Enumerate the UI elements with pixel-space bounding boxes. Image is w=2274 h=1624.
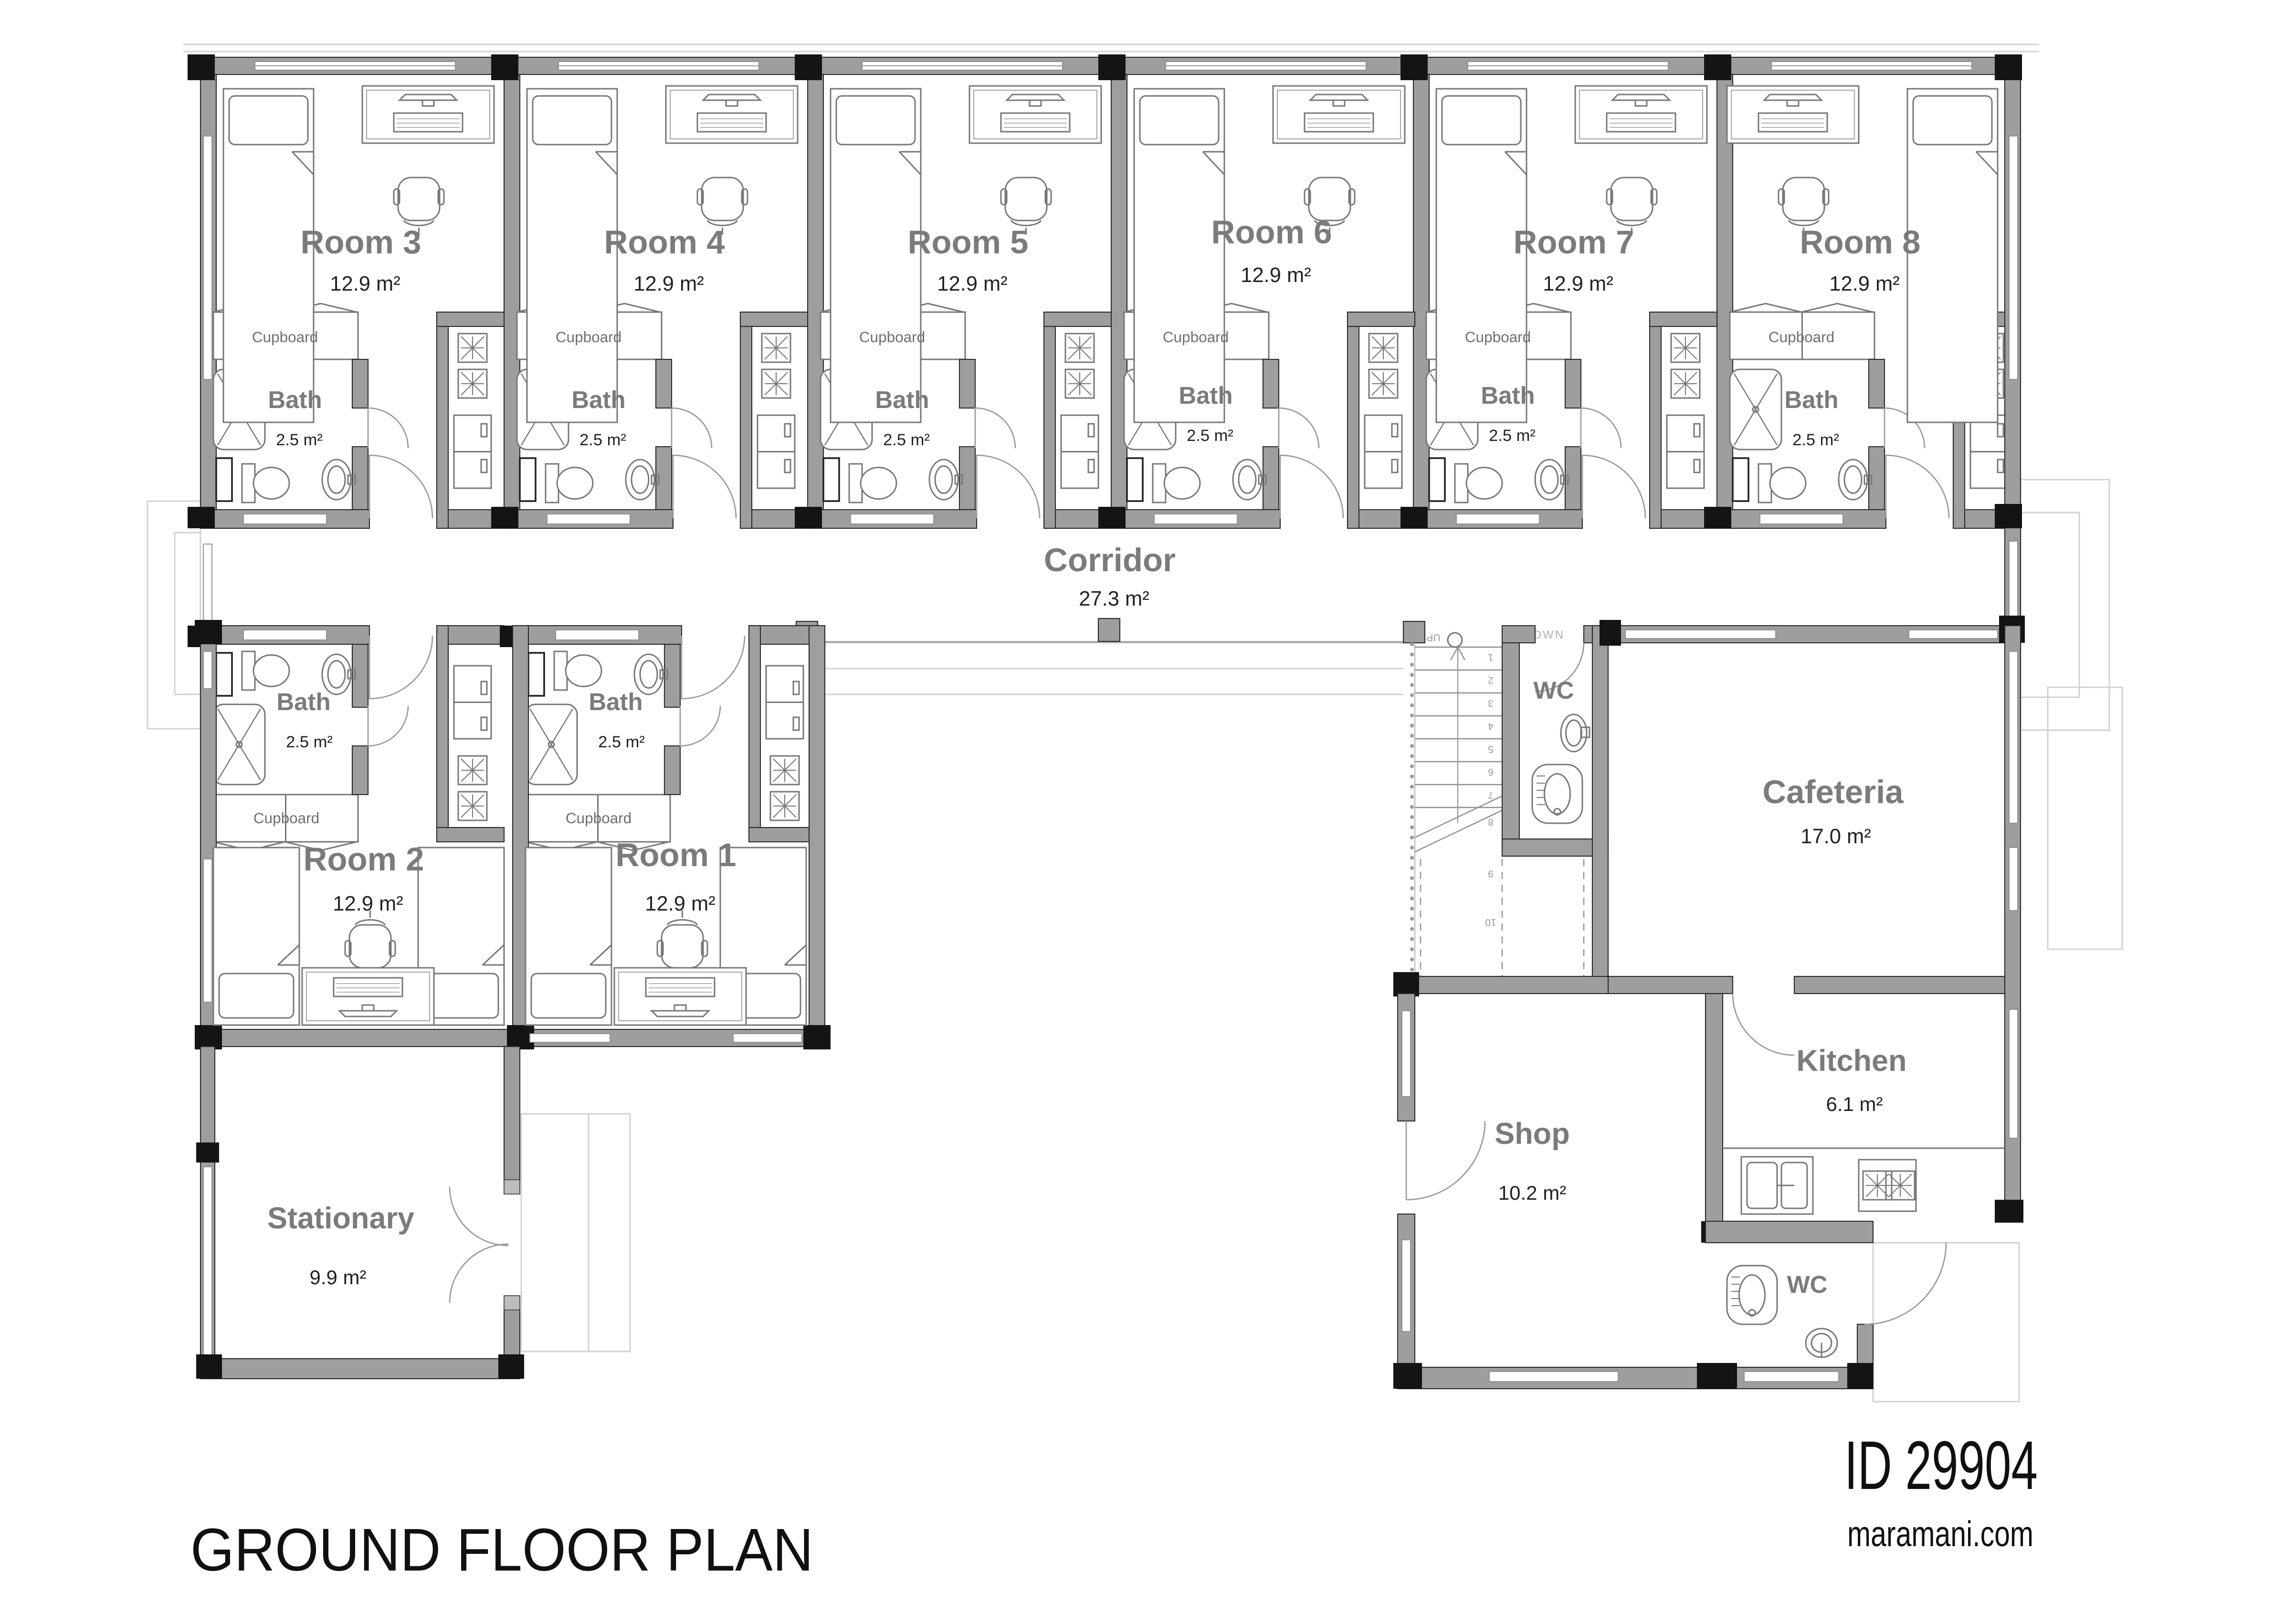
step-number: 4: [1488, 721, 1494, 732]
desk-icon: [1273, 86, 1405, 143]
column: [1403, 621, 1425, 643]
step-number: 5: [1488, 744, 1494, 754]
cafeteria-left-wall: [1592, 626, 1608, 984]
stove-icon: [1859, 1160, 1916, 1211]
room-area: 12.9 m²: [645, 892, 715, 915]
bath-label: Bath: [571, 386, 625, 413]
corridor-area: 27.3 m²: [1079, 587, 1149, 610]
door-arc: [1733, 994, 1794, 1055]
unit-bath-zone: [188, 626, 504, 850]
bath-label: Bath: [1179, 382, 1232, 409]
bath-label: Bath: [589, 688, 642, 715]
kitchen-room: Kitchen 6.1 m²: [1701, 994, 2005, 1243]
bath-label: Bath: [875, 386, 929, 413]
exterior-wall-south: [200, 1359, 520, 1379]
step-number: 10: [1485, 917, 1496, 928]
stair-up-marker: [1448, 633, 1462, 647]
cafeteria-south-wall: [1794, 976, 2005, 994]
cupboard-label: Cupboard: [556, 328, 621, 346]
door-arc: [450, 1244, 508, 1303]
room-area: 12.9 m²: [330, 272, 400, 295]
plan-title: GROUND FLOOR PLAN: [190, 1516, 813, 1583]
right-wing: UP 1 2 3 4 5 6 7 8 9 10 DOWN WC: [1393, 616, 2025, 1389]
kitchen-label: Kitchen: [1796, 1044, 1906, 1078]
room-area: 12.9 m²: [1241, 264, 1311, 287]
shop-room: Shop 10.2 m²: [1393, 972, 1608, 1367]
bath-area: 2.5 m²: [1489, 427, 1536, 445]
bath-area: 2.5 m²: [276, 431, 323, 449]
cupboard-label: Cupboard: [253, 809, 319, 827]
squat-toilet-icon: [1727, 1266, 1777, 1324]
shop-kitchen-wall: [1705, 994, 1723, 1243]
wc-label: WC: [1787, 1271, 1828, 1298]
bath-label: Bath: [1481, 382, 1535, 409]
corridor-right-porch: [2021, 480, 2109, 730]
step-number: 2: [1488, 675, 1494, 686]
cupboard-label: Cupboard: [252, 328, 318, 346]
wc-lower: WC: [1727, 1243, 1946, 1367]
bath-label: Bath: [1784, 386, 1838, 413]
room-area: 12.9 m²: [333, 892, 403, 915]
room-label: Room 1: [615, 837, 736, 873]
bath-label: Bath: [268, 386, 322, 413]
title-block: GROUND FLOOR PLAN ID 29904 maramani.com: [190, 1427, 2038, 1583]
shop-label: Shop: [1495, 1117, 1569, 1151]
room-label: Room 8: [1800, 224, 1920, 261]
left-wing: Room 2 12.9 m² Room 1 12.9 m² Bath 2.5 m…: [188, 620, 831, 1049]
desk-icon: [614, 968, 746, 1025]
cafeteria-area: 17.0 m²: [1800, 825, 1871, 848]
bath-area: 2.5 m²: [286, 733, 333, 751]
room-area: 12.9 m²: [1829, 272, 1899, 295]
bath-area: 2.5 m²: [598, 733, 645, 751]
step-number: 1: [1488, 652, 1494, 663]
bath-area: 2.5 m²: [579, 431, 626, 449]
cupboard-label: Cupboard: [1465, 328, 1531, 346]
stationary-right-wall: [504, 1047, 520, 1187]
website: maramani.com: [1847, 1514, 2033, 1554]
chair-icon: [345, 911, 395, 968]
door-arc: [1864, 1243, 1946, 1324]
bath-label: Bath: [276, 688, 330, 715]
room-area: 12.9 m²: [1543, 272, 1613, 295]
exterior-wall: [809, 626, 825, 1029]
step-number: 9: [1488, 868, 1494, 879]
room-label: Room 5: [907, 224, 1028, 261]
desk-icon: [969, 86, 1101, 143]
step-number: 8: [1488, 817, 1494, 828]
corridor: Corridor 27.3 m²: [796, 542, 1425, 694]
stationary-label: Stationary: [267, 1202, 414, 1235]
bath-area: 2.5 m²: [883, 431, 930, 449]
bath-area: 2.5 m²: [1792, 431, 1839, 449]
cafeteria-label: Cafeteria: [1762, 774, 1904, 810]
bath-area: 2.5 m²: [1187, 427, 1233, 445]
cafeteria-south-wall: [1608, 976, 1733, 994]
room-area: 12.9 m²: [937, 272, 1007, 295]
wc-label: WC: [1534, 677, 1574, 704]
up-label: UP: [1426, 632, 1440, 643]
cafeteria-room: Cafeteria 17.0 m²: [1592, 616, 2025, 1223]
cupboard-label: Cupboard: [1769, 328, 1834, 346]
cupboard-label: Cupboard: [859, 328, 925, 346]
room-label: Room 6: [1211, 214, 1332, 251]
cafeteria-side-porch: [2048, 687, 2122, 949]
bed-icon: [1907, 89, 1998, 422]
stationary-room: Stationary 9.9 m²: [196, 1047, 524, 1379]
room-label: Room 2: [303, 841, 424, 878]
step-number: 6: [1488, 766, 1494, 777]
floor-plan-canvas: Room 3 12.9 m² Room 4 12.9 m² Room 5 12.…: [0, 0, 2274, 1624]
shop-area: 10.2 m²: [1498, 1182, 1566, 1204]
kitchen-sink-icon: [1741, 1157, 1813, 1214]
shop-north-wall: [1398, 976, 1608, 994]
stationary-side-porch: [521, 1114, 630, 1352]
plan-id: ID 29904: [1844, 1427, 2038, 1504]
door-arc: [1406, 1121, 1485, 1200]
bed-icon: [1134, 89, 1224, 422]
stair-wc-wall: [1502, 643, 1519, 856]
kitchen-south-wall: [1705, 1221, 1873, 1243]
stationary-area: 9.9 m²: [309, 1266, 366, 1289]
desk-icon: [666, 86, 798, 143]
bed-icon: [526, 848, 611, 1025]
squat-toilet-icon: [1532, 765, 1582, 823]
cupboard-label: Cupboard: [1163, 328, 1229, 346]
desk-icon: [1575, 86, 1707, 143]
room-label: Room 4: [604, 224, 725, 261]
entry-porch: [1873, 1243, 2019, 1402]
step-number: 7: [1488, 789, 1494, 800]
chair-icon: [657, 911, 707, 968]
desk-icon: [1727, 86, 1859, 143]
kitchen-area: 6.1 m²: [1826, 1093, 1883, 1115]
column: [1098, 618, 1120, 641]
corridor-label: Corridor: [1044, 542, 1176, 578]
bed-icon: [213, 848, 299, 1025]
step-number: 3: [1488, 698, 1494, 709]
room-area: 12.9 m²: [633, 272, 704, 295]
desk-icon: [362, 86, 494, 143]
room-label: Room 7: [1513, 224, 1634, 261]
door-arc: [450, 1187, 508, 1246]
unit-bath-zone: [500, 626, 816, 850]
room-label: Room 3: [300, 224, 421, 261]
wc-east-wall: [1857, 1324, 1873, 1367]
desk-icon: [302, 968, 434, 1025]
cupboard-label: Cupboard: [566, 809, 632, 827]
